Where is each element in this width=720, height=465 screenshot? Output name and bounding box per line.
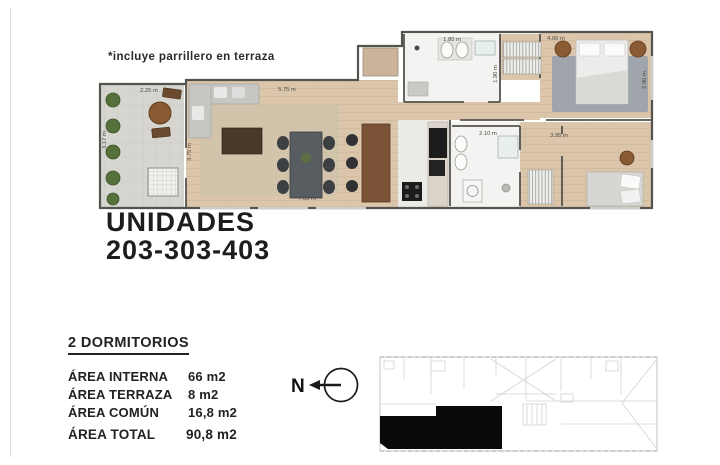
dining-chair <box>277 158 289 172</box>
dining-chair <box>323 180 335 194</box>
bar-stool <box>346 180 358 192</box>
sink <box>441 42 453 58</box>
bar-stool <box>346 157 358 169</box>
area-rows: ÁREA INTERNA 66 m2 ÁREA TERRAZA 8 m2 ÁRE… <box>68 368 237 444</box>
dim-bath1-height: 1.90 m <box>493 65 499 83</box>
floorplan-sheet: *incluye parrillero en terraza <box>0 0 720 465</box>
bedroom1-furniture <box>552 40 648 112</box>
dining-table <box>290 132 322 198</box>
plant-icon <box>107 193 119 205</box>
bar-stool <box>346 134 358 146</box>
area-value: 16,8 m2 <box>188 404 237 422</box>
area-row-terraza: ÁREA TERRAZA 8 m2 <box>68 386 237 404</box>
service-shaft <box>363 48 398 76</box>
north-label: N <box>291 376 305 397</box>
bedrooms-heading: 2 DORMITORIOS <box>68 335 189 355</box>
unit-title-line2: 203-303-403 <box>106 236 270 264</box>
burner-icon <box>405 194 409 198</box>
dining-chair <box>277 180 289 194</box>
dim-living-length: 7.85 m <box>298 196 316 202</box>
centerpiece-plant-icon <box>301 153 311 163</box>
plant-icon <box>106 145 120 159</box>
hall-closet <box>528 170 553 204</box>
corridor-floor <box>398 102 540 120</box>
burner-icon <box>405 185 409 189</box>
oven <box>429 160 445 176</box>
refrigerator <box>429 128 447 158</box>
shower-drain-icon <box>502 184 510 192</box>
unit-title: UNIDADES 203-303-403 <box>106 208 270 264</box>
pillow <box>620 174 641 190</box>
dining-chair <box>323 136 335 150</box>
burner-icon <box>415 185 419 189</box>
area-total-value: 90,8 m2 <box>186 426 237 444</box>
floor-plan: 2.25 m 3.17 m 5.75 m 3.75 m 7.85 m 1.80 … <box>88 22 668 216</box>
side-table <box>620 151 634 165</box>
dim-living-height: 3.75 m <box>187 143 193 161</box>
closet-rail <box>503 42 541 57</box>
dim-bedroom2-width: 3.95 m <box>550 133 568 139</box>
plant-icon <box>106 93 120 107</box>
bidet <box>455 154 467 170</box>
dim-living-width: 5.75 m <box>278 87 296 93</box>
nightstand <box>630 41 646 57</box>
page-border-line <box>10 8 11 457</box>
area-value: 8 m2 <box>188 386 218 404</box>
shower-head-icon <box>415 46 420 51</box>
compass-arrow-head-icon <box>309 380 320 390</box>
pillow <box>620 189 640 204</box>
parrillero-grill <box>148 168 178 196</box>
closet-rail <box>503 59 541 74</box>
area-row-interna: ÁREA INTERNA 66 m2 <box>68 368 237 386</box>
vanity <box>498 136 518 158</box>
burner-icon <box>415 194 419 198</box>
dim-bedroom1-width: 4.60 m <box>547 36 565 42</box>
dim-bath2-width: 2.10 m <box>479 131 497 137</box>
area-total-label: ÁREA TOTAL <box>68 426 186 444</box>
area-row-total: ÁREA TOTAL 90,8 m2 <box>68 426 237 444</box>
unit-title-line1: UNIDADES <box>106 208 270 236</box>
kitchen-island <box>362 124 390 202</box>
sofa-pillow <box>232 87 245 98</box>
terrace-bench <box>152 127 171 138</box>
area-label: ÁREA INTERNA <box>68 368 188 386</box>
plant-icon <box>106 119 120 133</box>
shower-mat <box>408 82 428 96</box>
north-compass: N <box>283 360 367 410</box>
dim-bedroom1-height: 2.90 m <box>642 71 648 89</box>
pillow <box>579 43 600 56</box>
sink <box>456 42 468 58</box>
area-label: ÁREA TERRAZA <box>68 386 188 404</box>
dining-chair <box>323 158 335 172</box>
dim-terrace-height: 3.17 m <box>102 131 108 149</box>
coffee-table <box>222 128 262 154</box>
area-row-comun: ÁREA COMÚN 16,8 m2 <box>68 404 237 422</box>
dining-chair <box>277 136 289 150</box>
basin <box>475 41 495 55</box>
cooktop <box>402 182 422 201</box>
area-label: ÁREA COMÚN <box>68 404 188 422</box>
washing-machine <box>463 180 482 202</box>
area-summary: 2 DORMITORIOS ÁREA INTERNA 66 m2 ÁREA TE… <box>68 334 237 444</box>
area-value: 66 m2 <box>188 368 226 386</box>
terrace-table <box>149 102 171 124</box>
plant-icon <box>106 171 120 185</box>
nightstand <box>555 41 571 57</box>
dim-bath1-width: 1.80 m <box>443 37 461 43</box>
pillow <box>604 43 625 56</box>
sofa-pillow <box>214 87 227 98</box>
dim-terrace-width: 2.25 m <box>140 88 158 94</box>
key-plan <box>376 349 662 459</box>
sofa-pillow <box>192 106 204 120</box>
toilet <box>455 136 467 152</box>
